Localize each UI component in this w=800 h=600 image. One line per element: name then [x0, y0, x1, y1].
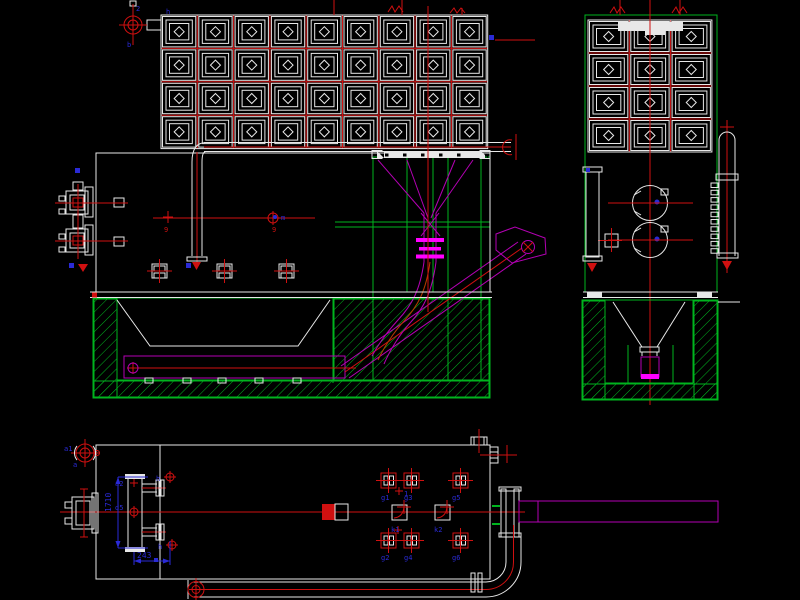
filter-panel — [672, 88, 710, 118]
filter-panel — [380, 50, 413, 80]
filter-panel — [199, 17, 232, 47]
label-h: h — [156, 475, 160, 483]
label-h: h — [166, 8, 170, 16]
filter-panel — [308, 50, 341, 80]
label-243: 243 — [137, 551, 152, 560]
node-marker — [69, 263, 74, 268]
filter-panel — [163, 17, 196, 47]
filter-panel — [590, 55, 628, 85]
filter-panel — [453, 17, 486, 47]
front-filter-grid — [161, 15, 488, 149]
filter-panel — [453, 83, 486, 113]
filter-panel — [344, 50, 377, 80]
label-h: h — [158, 543, 162, 551]
cad-viewport[interactable]: 2bhm99a1aa2d5hh1710243g1g3g5g2g4g6k1k21 — [0, 0, 800, 600]
filter-panel — [672, 121, 710, 151]
node-marker — [489, 35, 494, 40]
filter-panel — [344, 83, 377, 113]
filter-panel — [235, 17, 268, 47]
label-a1: a1 — [64, 445, 72, 453]
plan-view — [60, 429, 718, 600]
node-marker — [75, 168, 80, 173]
filter-panel — [235, 83, 268, 113]
label-a2: a2 — [115, 480, 123, 488]
node-marker — [186, 263, 191, 268]
label-g2: g2 — [381, 554, 389, 562]
filter-panel — [271, 17, 304, 47]
filter-panel — [590, 121, 628, 151]
filter-panel — [417, 50, 450, 80]
filter-panel — [417, 17, 450, 47]
node-marker — [586, 168, 590, 172]
filter-panel — [271, 83, 304, 113]
label-k2: k2 — [434, 526, 442, 534]
filter-panel — [308, 83, 341, 113]
node-marker — [154, 558, 158, 562]
label-d5: d5 — [115, 504, 123, 512]
label-k1: k1 — [391, 526, 399, 534]
label-1710: 1710 — [104, 493, 113, 512]
label-b: b — [127, 41, 131, 49]
filter-panel — [199, 83, 232, 113]
label-m: m — [281, 214, 285, 222]
label-g4: g4 — [404, 554, 412, 562]
label-2: 2 — [136, 5, 140, 13]
filter-panel — [380, 83, 413, 113]
filter-panel — [199, 50, 232, 80]
side-elevation-view — [582, 0, 740, 405]
filter-panel — [235, 50, 268, 80]
front-hopper-conveyor — [117, 300, 356, 383]
filter-panel — [672, 55, 710, 85]
label-g1: g1 — [381, 494, 389, 502]
label-1: 1 — [404, 490, 408, 498]
cad-drawing: 2bhm99a1aa2d5hh1710243g1g3g5g2g4g6k1k21 — [0, 0, 800, 600]
filter-panel — [344, 17, 377, 47]
label-a: a — [73, 461, 77, 469]
label-9: 9 — [164, 226, 168, 234]
filter-panel — [163, 117, 196, 147]
filter-panel — [417, 83, 450, 113]
filter-panel — [308, 17, 341, 47]
label-9: 9 — [272, 226, 276, 234]
filter-panel — [163, 50, 196, 80]
filter-panel — [590, 88, 628, 118]
filter-panel — [380, 17, 413, 47]
label-g5: g5 — [452, 494, 460, 502]
label-g6: g6 — [452, 554, 460, 562]
filter-panel — [271, 50, 304, 80]
filter-panel — [453, 50, 486, 80]
filter-panel — [163, 83, 196, 113]
